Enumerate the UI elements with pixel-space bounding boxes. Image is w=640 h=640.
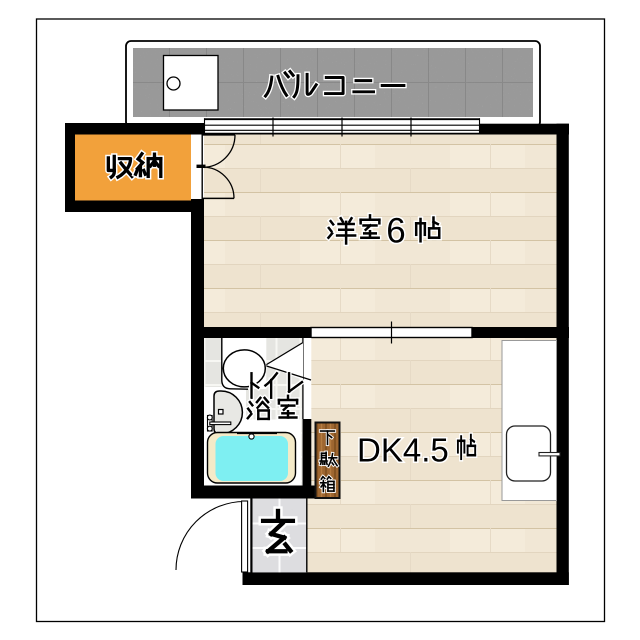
svg-text:DK4.5: DK4.5 (357, 432, 449, 469)
svg-text:6: 6 (386, 212, 405, 251)
